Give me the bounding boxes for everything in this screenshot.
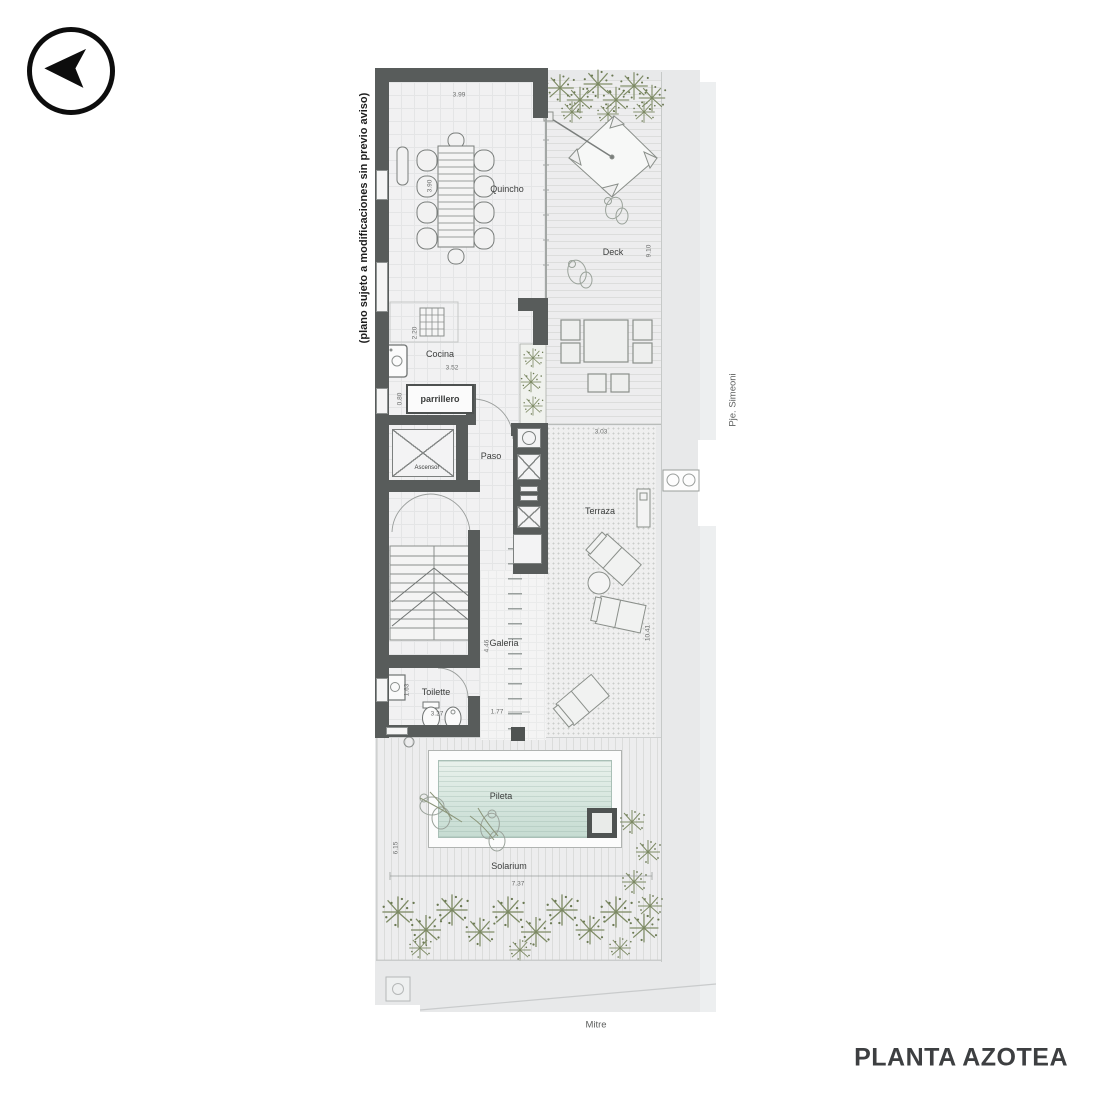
room-label-galeria: Galeria xyxy=(489,638,518,648)
room-label-quincho: Quincho xyxy=(490,184,524,194)
wall-cocina-stub xyxy=(518,298,548,311)
wall-parrillero-bottom xyxy=(388,415,476,425)
room-label-terraza: Terraza xyxy=(585,506,615,516)
disclaimer-note: (plano sujeto a modificaciones sin previ… xyxy=(358,93,370,344)
vent-box xyxy=(517,428,541,448)
hedge-top xyxy=(546,70,666,125)
dim-toilette-height: 1.63 xyxy=(404,684,411,697)
planter-strip xyxy=(520,344,546,424)
planter-small xyxy=(511,727,525,741)
dim-terraza-width: 3.03 xyxy=(595,429,608,436)
terraza-furniture xyxy=(552,489,650,729)
glazing-line xyxy=(543,117,549,298)
deck-dining-set xyxy=(561,320,652,392)
dim-quincho-width: 3.99 xyxy=(453,92,466,99)
room-label-solarium: Solarium xyxy=(491,861,527,871)
room-label-paso: Paso xyxy=(481,451,502,461)
window-toilette xyxy=(376,678,388,702)
room-label-parrillero: parrillero xyxy=(420,394,459,404)
floor-plan-page: Quincho Deck Cocina parrillero Ascensor … xyxy=(0,0,1100,1100)
wall-niche xyxy=(386,727,408,735)
wall-top-right-stub xyxy=(533,68,548,118)
room-label-cocina: Cocina xyxy=(426,349,454,359)
wall-stairs-right xyxy=(468,530,480,662)
wall-top xyxy=(375,68,548,82)
shade-sail xyxy=(544,112,657,197)
service-unit xyxy=(663,470,699,491)
dim-galeria-width: 1.77 xyxy=(491,709,504,716)
dim-toilette-width: 3.27 xyxy=(431,711,444,718)
north-arrow-icon xyxy=(27,27,115,115)
planter-square xyxy=(587,808,617,838)
window-quincho-long xyxy=(376,262,388,312)
dim-cocina-width: 3.52 xyxy=(446,365,459,372)
skylight-2 xyxy=(517,506,541,528)
skylight-3 xyxy=(513,534,542,564)
dim-terraza-height: 10.41 xyxy=(645,625,652,641)
toilette-fixtures xyxy=(379,675,461,729)
room-label-toilette: Toilette xyxy=(422,687,451,697)
dim-galeria-height: 4.46 xyxy=(484,640,491,653)
stairs xyxy=(390,546,478,640)
page-title: PLANTA AZOTEA xyxy=(854,1044,1068,1073)
wall-cocina-right xyxy=(533,311,548,345)
window-parrillero xyxy=(376,388,388,414)
street-label-bottom: Mitre xyxy=(585,1020,606,1031)
room-label-ascensor: Ascensor xyxy=(414,465,439,471)
street-label-side: Pje. Simeoni xyxy=(728,373,739,426)
dim-quincho-height: 3.90 xyxy=(427,180,434,193)
duct-2 xyxy=(520,495,538,501)
quincho-table xyxy=(397,133,494,264)
window-quincho-small xyxy=(376,170,388,200)
dim-solarium-height: 6.15 xyxy=(393,842,400,855)
dim-solarium-width: 7.37 xyxy=(512,881,525,888)
dim-parrillero-height: 0.80 xyxy=(397,393,404,406)
plan-detail-drawing xyxy=(0,0,1100,1100)
wall-paso-bottom xyxy=(388,480,480,492)
wall-stairs-bottom xyxy=(375,655,480,668)
wall-ascensor-right xyxy=(456,425,468,487)
hedge-bottom xyxy=(382,894,659,960)
duct-1 xyxy=(520,486,538,492)
dim-deck-height: 9.10 xyxy=(646,245,653,258)
hedge-right xyxy=(620,810,663,918)
room-label-pileta: Pileta xyxy=(490,791,513,801)
skylight-1 xyxy=(517,454,541,480)
room-label-deck: Deck xyxy=(603,247,624,257)
dim-cocina-height: 2.20 xyxy=(412,327,419,340)
